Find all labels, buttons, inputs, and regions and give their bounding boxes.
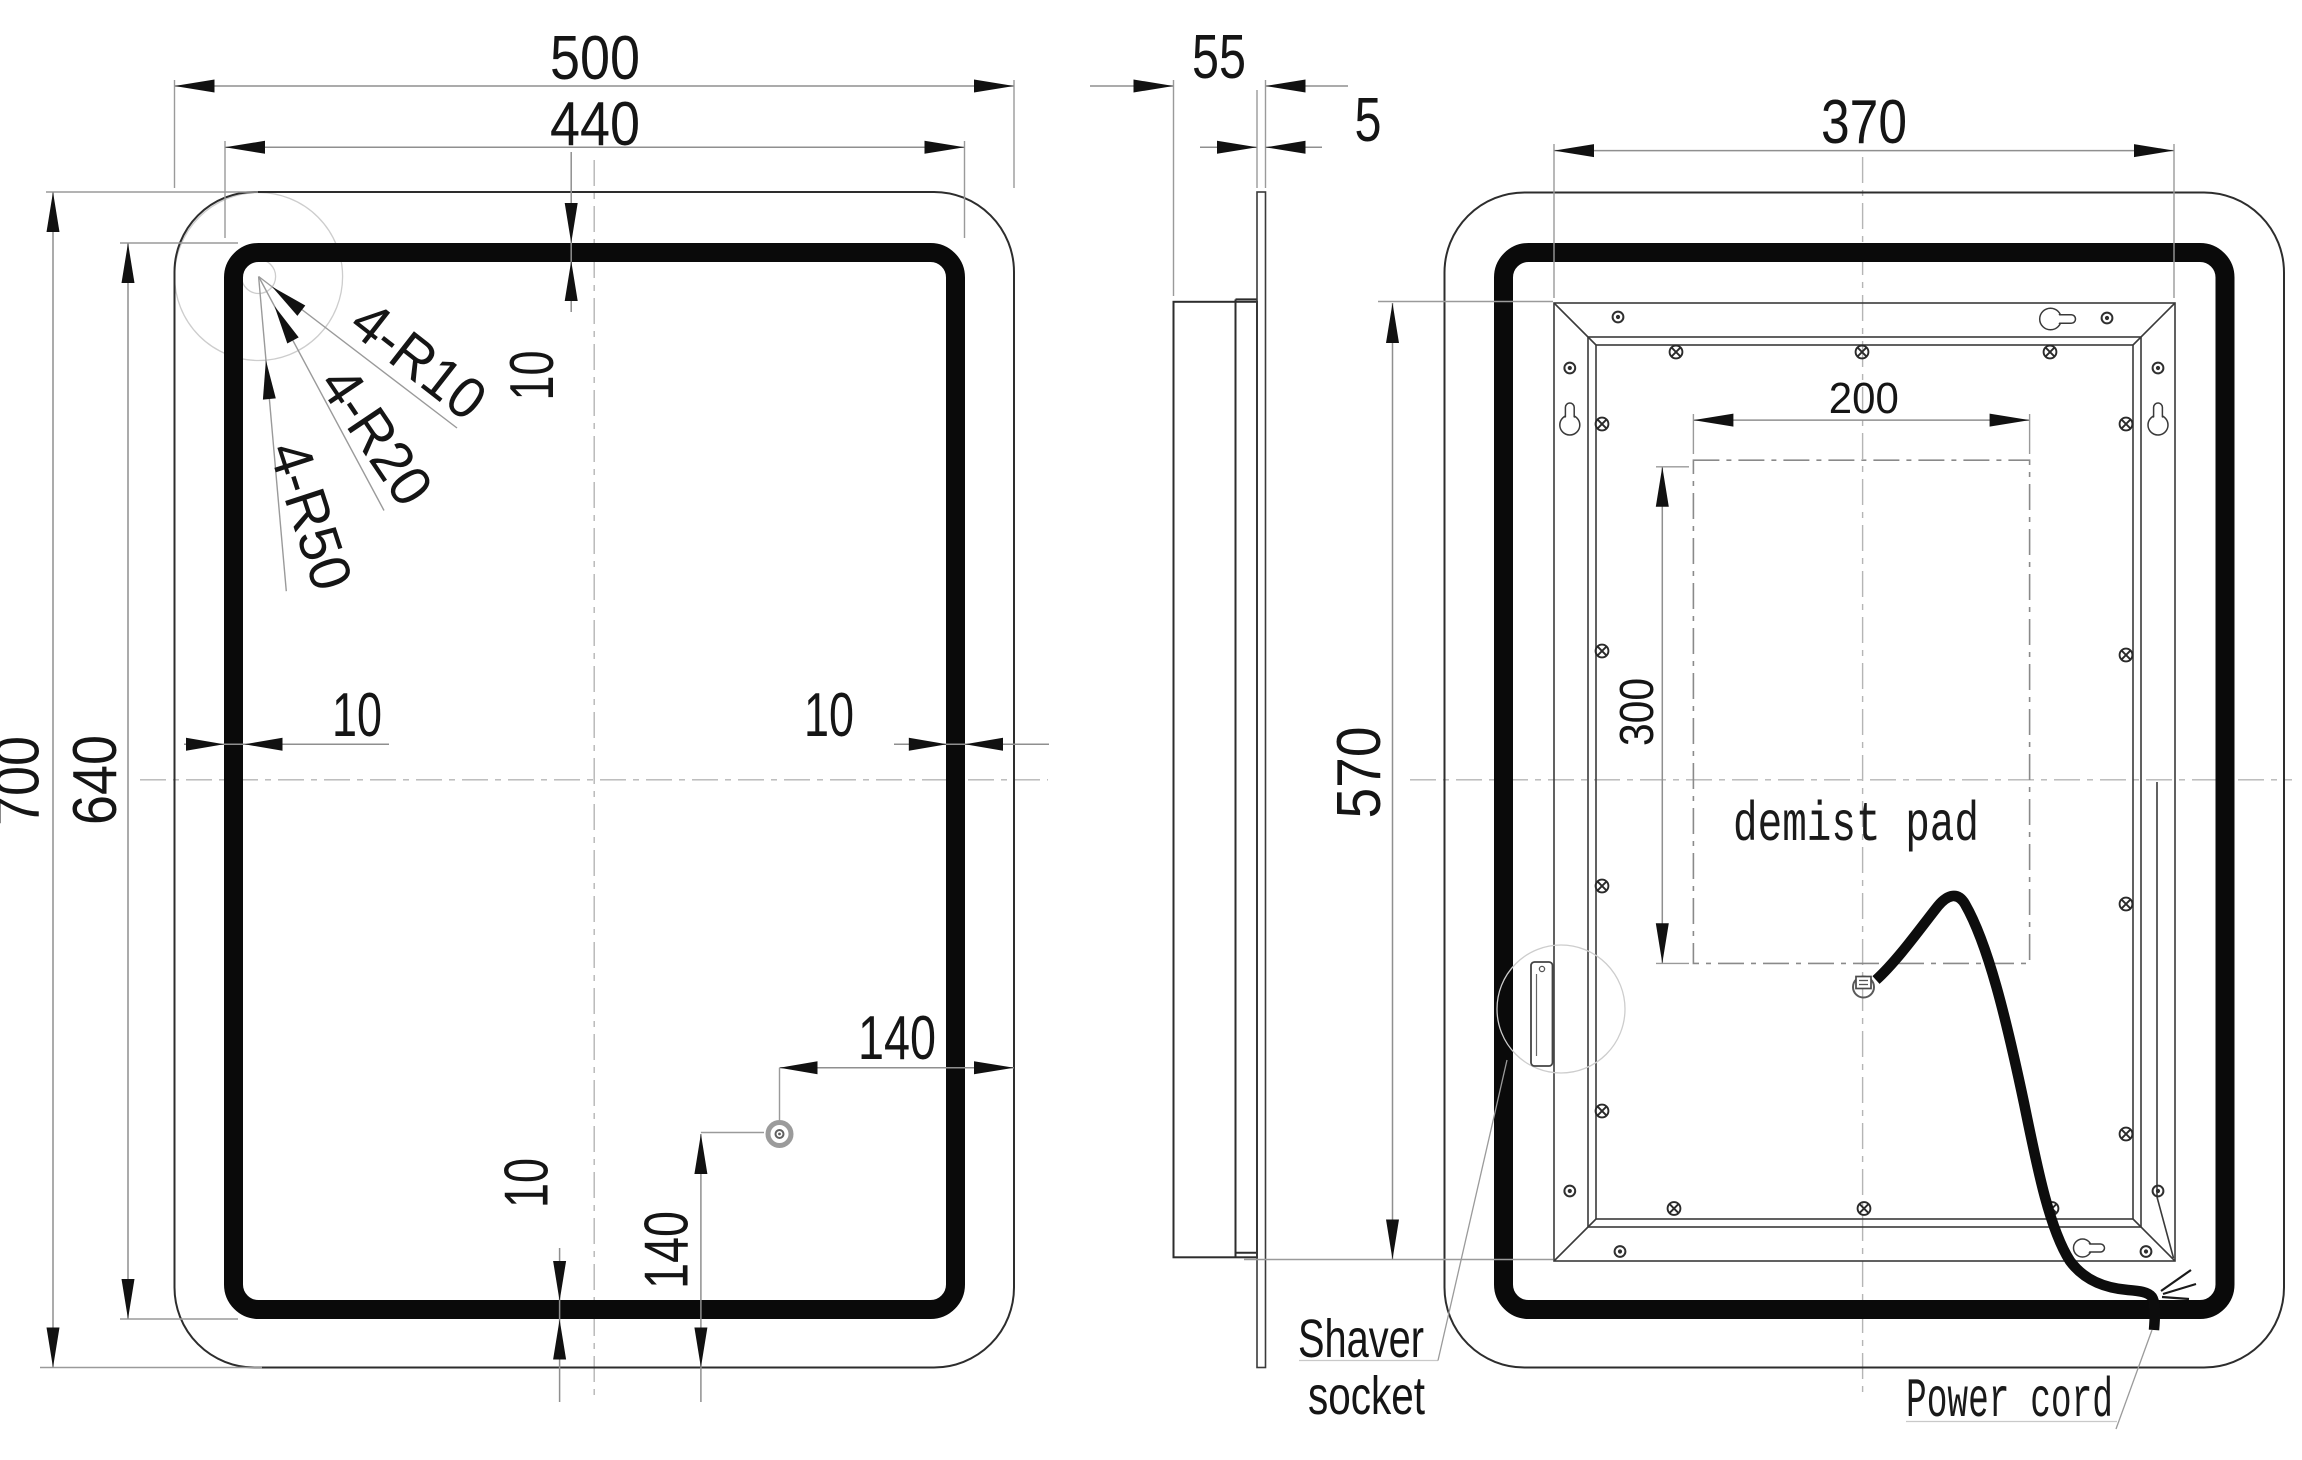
svg-text:200: 200: [1829, 374, 1899, 423]
svg-text:5: 5: [1355, 86, 1382, 155]
svg-text:140: 140: [858, 1004, 936, 1073]
svg-text:demist pad: demist pad: [1733, 793, 1979, 857]
svg-text:700: 700: [0, 736, 52, 826]
svg-text:140: 140: [632, 1211, 701, 1289]
svg-text:500: 500: [550, 24, 640, 93]
svg-text:Power cord: Power cord: [1906, 1369, 2113, 1433]
svg-text:570: 570: [1325, 727, 1394, 819]
svg-text:10: 10: [804, 681, 854, 750]
svg-text:55: 55: [1192, 23, 1246, 92]
svg-text:300: 300: [1611, 678, 1664, 746]
svg-text:640: 640: [61, 735, 130, 825]
svg-text:440: 440: [550, 90, 640, 159]
svg-text:socket: socket: [1308, 1366, 1425, 1426]
svg-text:370: 370: [1821, 88, 1907, 157]
svg-text:10: 10: [492, 1158, 561, 1208]
svg-text:10: 10: [332, 681, 382, 750]
svg-text:10: 10: [498, 351, 567, 401]
